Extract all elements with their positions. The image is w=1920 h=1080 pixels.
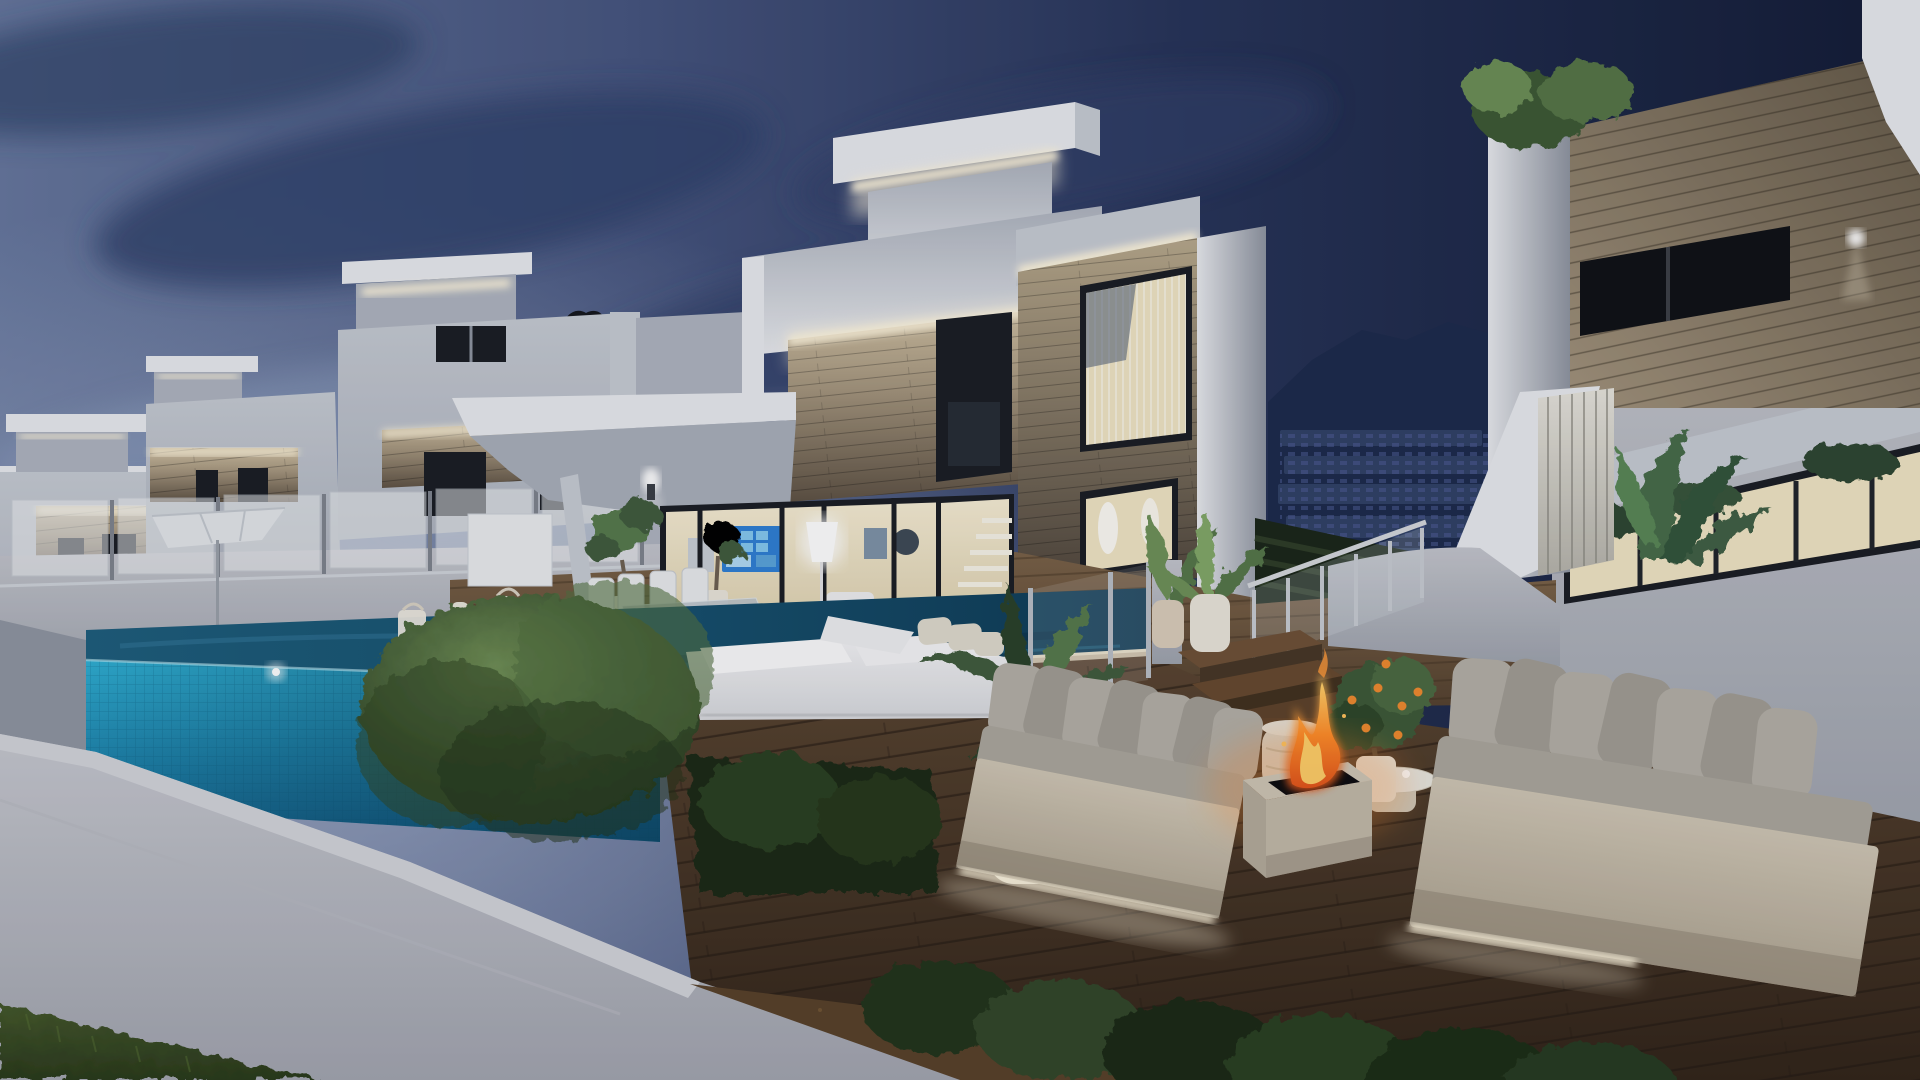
vignette bbox=[0, 0, 1920, 1080]
villa-dusk-render: Dusk 3D architectural rendering of a row… bbox=[0, 0, 1920, 1080]
